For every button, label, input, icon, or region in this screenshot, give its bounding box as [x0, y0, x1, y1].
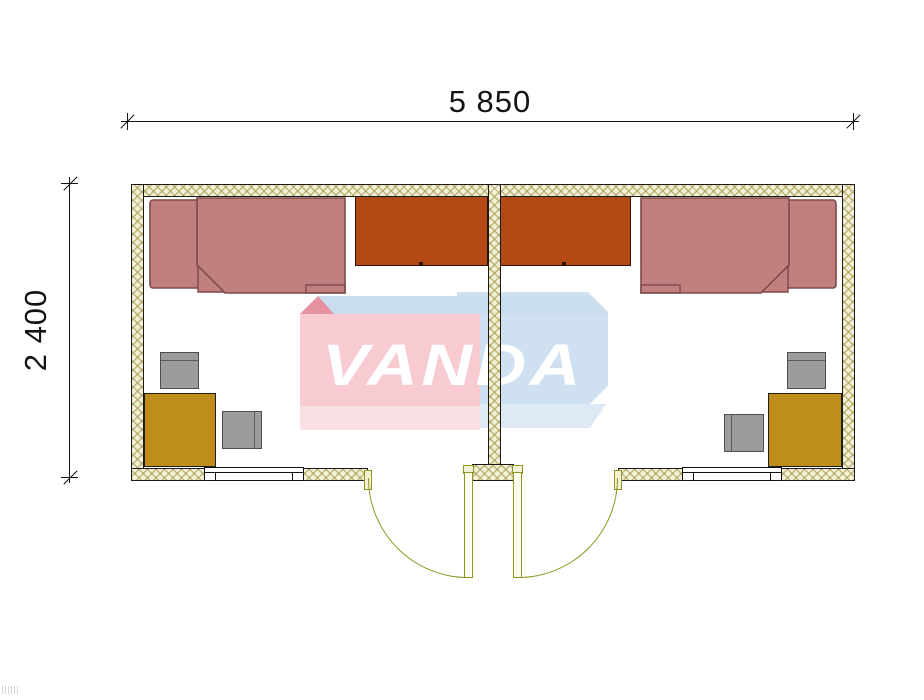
window-frame-line [205, 472, 303, 473]
watermark-text: VANDA [322, 333, 584, 398]
window-frame-line [683, 472, 781, 473]
wall-left [131, 184, 144, 481]
wall-partition [488, 184, 501, 465]
floorplan-canvas: 5 850 2 400 [0, 0, 924, 700]
window-left [204, 467, 304, 481]
window-mullion [292, 472, 293, 481]
corner-artifact [2, 686, 18, 694]
door-leaf-right [513, 472, 522, 578]
window-mullion [215, 472, 216, 481]
wall-door-pier [472, 464, 514, 481]
watermark-pink-skirt [300, 406, 480, 430]
wall-right [842, 184, 855, 481]
window-mullion [770, 472, 771, 481]
watermark-top-face [300, 296, 608, 314]
door-leaf-left [464, 472, 473, 578]
window-mullion [693, 472, 694, 481]
window-right [682, 467, 782, 481]
